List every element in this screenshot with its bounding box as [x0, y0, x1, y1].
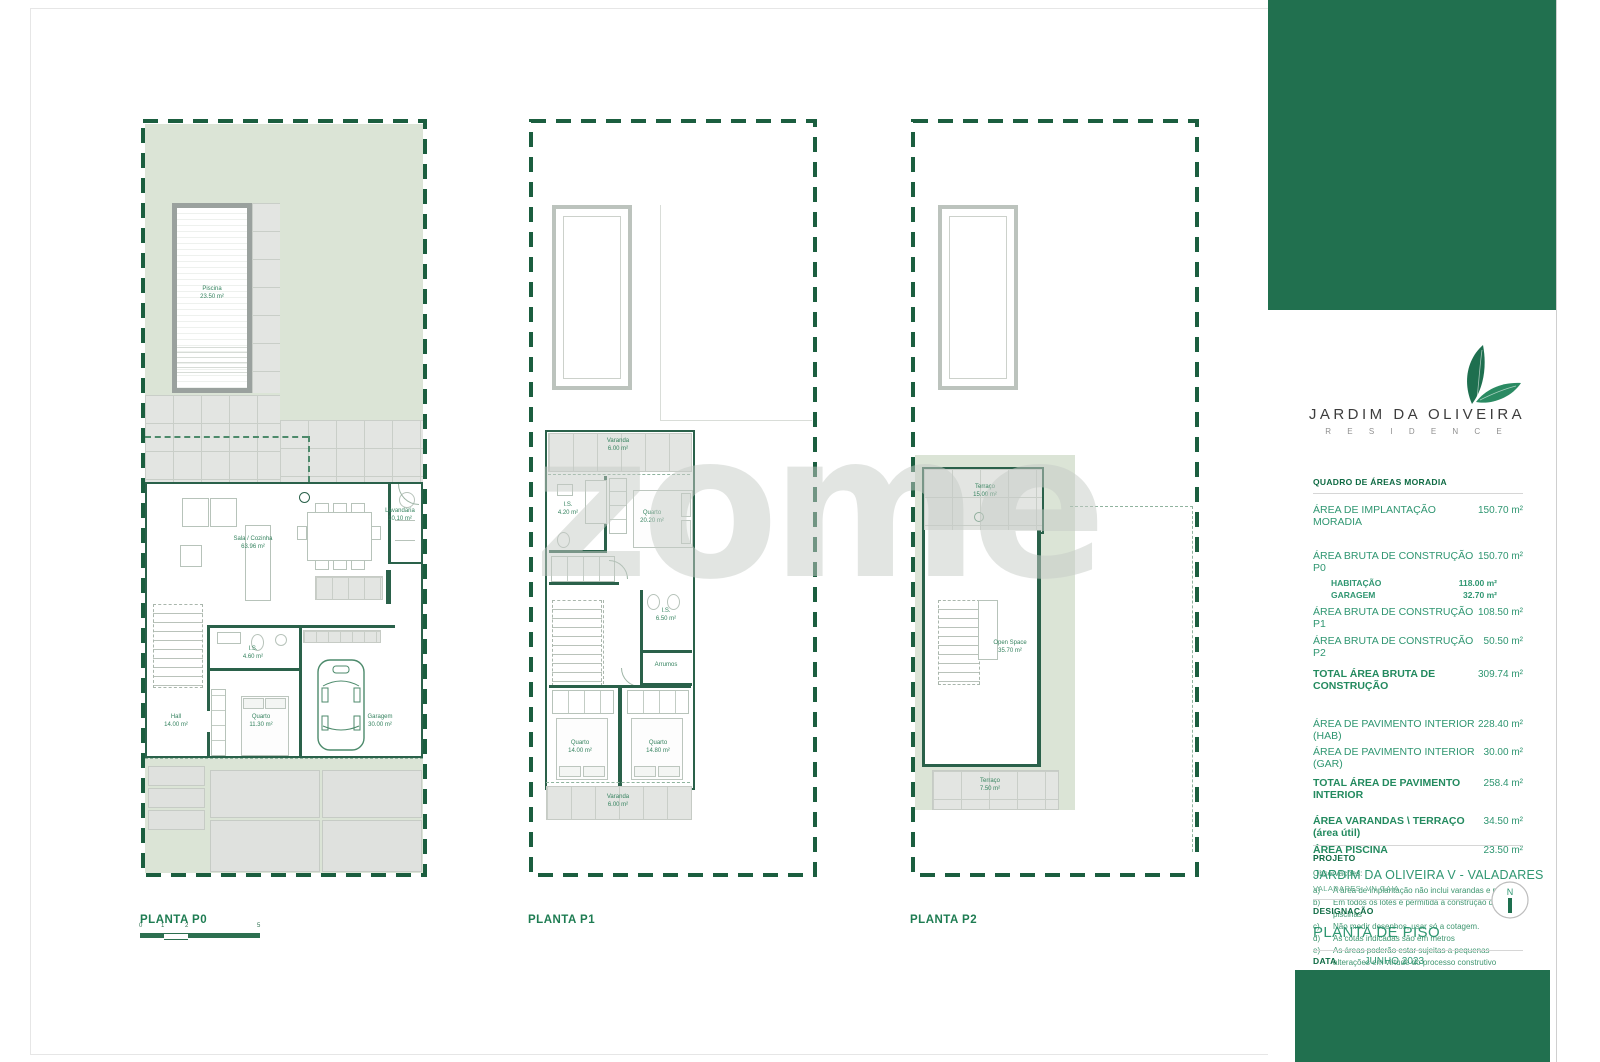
svg-text:N: N: [1507, 887, 1514, 897]
plan-p0: Piscina23.50 m²: [140, 118, 428, 878]
brand-title: JARDIM DA OLIVEIRA: [1302, 406, 1532, 423]
caption-planta-p0: PLANTA P0: [140, 914, 207, 926]
sheet-frame-left: [30, 8, 31, 1054]
area-row-sub: HABITAÇÃO 118.00 m²: [1313, 578, 1523, 588]
area-row: ÁREA BRUTA DE CONSTRUÇÃO P2 50.50 m²: [1313, 635, 1523, 659]
p0-plot-border: [140, 118, 428, 878]
plan-p2: Terraço15.00 m² Open Space35.70 m² Terra…: [910, 118, 1200, 878]
designation-title: PLANTA DE PISO: [1313, 924, 1523, 941]
area-row: ÁREA BRUTA DE CONSTRUÇÃO P1 108.50 m²: [1313, 606, 1523, 630]
north-arrow-icon: N: [1490, 880, 1530, 920]
drawing-sheet: Piscina23.50 m²: [0, 0, 1600, 1062]
areas-heading: QUADRO DE ÁREAS MORADIA: [1313, 477, 1523, 487]
area-row: ÁREA DE IMPLANTAÇÃO MORADIA 150.70 m²: [1313, 504, 1523, 528]
sheet-frame-top: [30, 8, 1268, 9]
area-row-total: TOTAL ÁREA DE PAVIMENTO INTERIOR 258.4 m…: [1313, 777, 1523, 801]
project-label: PROJETO: [1313, 853, 1523, 863]
title-block: JARDIM DA OLIVEIRA R E S I D E N C E QUA…: [1268, 0, 1557, 1062]
date-value: JUNHO 2023: [1365, 956, 1424, 967]
sheet-frame-bottom: [30, 1054, 1268, 1055]
brand-subtitle: R E S I D E N C E: [1302, 427, 1532, 436]
p2-plot-border: [910, 118, 1200, 878]
green-footer-block: [1295, 970, 1550, 1062]
p1-plot-border: [528, 118, 818, 878]
area-row-sub: GARAGEM 32.70 m²: [1313, 590, 1523, 600]
date-section: DATA JUNHO 2023: [1313, 956, 1523, 967]
caption-planta-p2: PLANTA P2: [910, 914, 977, 926]
date-label: DATA: [1313, 956, 1337, 966]
area-row: ÁREA DE PAVIMENTO INTERIOR (HAB) 228.40 …: [1313, 718, 1523, 742]
area-row-total: TOTAL ÁREA BRUTA DE CONSTRUÇÃO 309.74 m²: [1313, 668, 1523, 692]
olive-leaves-icon: [1446, 344, 1522, 406]
area-row-total: ÁREA VARANDAS \ TERRAÇO (área útil) 34.5…: [1313, 815, 1523, 839]
green-header-block: [1268, 0, 1556, 310]
area-row: ÁREA BRUTA DE CONSTRUÇÃO P0 150.70 m²: [1313, 550, 1523, 574]
plan-p1: Varanda6.00 m² I.S.4.20 m² Quarto20.20 m…: [528, 118, 818, 878]
area-row: ÁREA DE PAVIMENTO INTERIOR (GAR) 30.00 m…: [1313, 746, 1523, 770]
caption-planta-p1: PLANTA P1: [528, 914, 595, 926]
